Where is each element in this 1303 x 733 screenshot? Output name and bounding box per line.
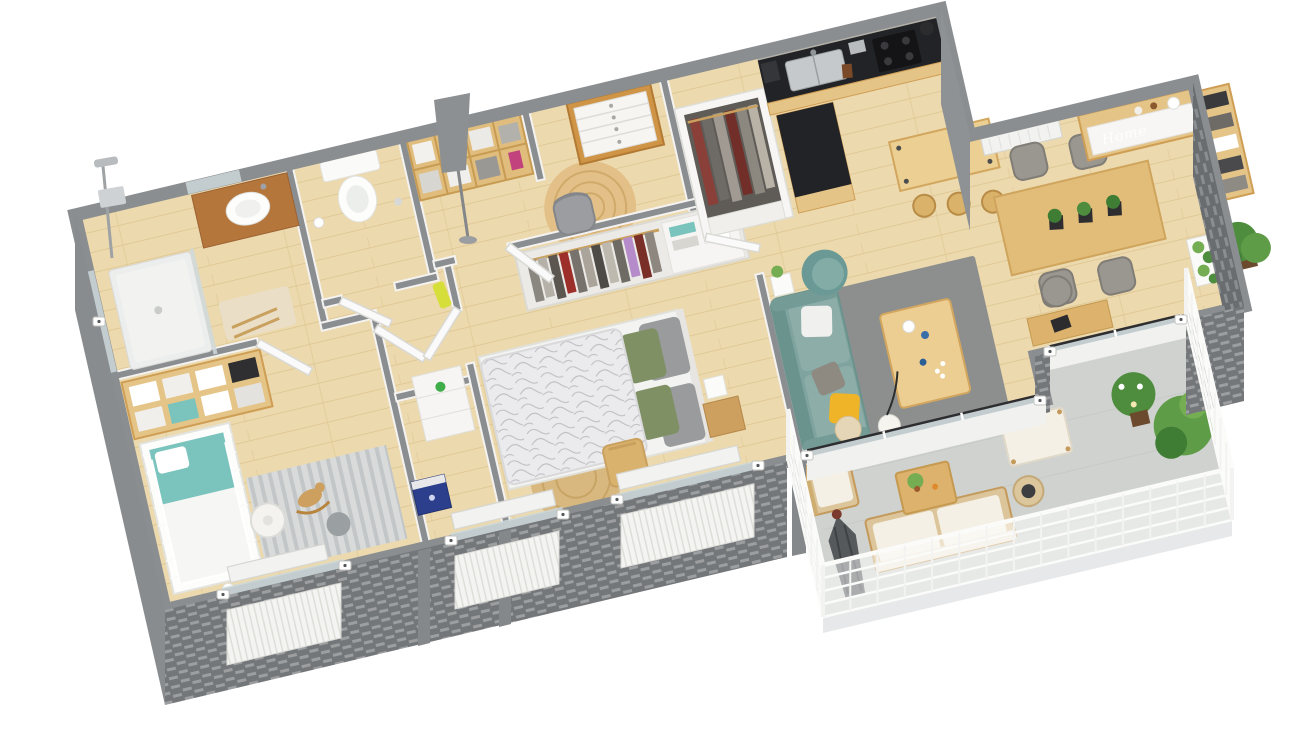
window-tag-icon bbox=[1034, 396, 1046, 405]
floorplan-canvas: Home bbox=[0, 0, 1303, 733]
window-tag-icon bbox=[557, 510, 569, 519]
window-tag-icon bbox=[339, 561, 351, 570]
window-tag-icon bbox=[93, 317, 105, 326]
window-tag-icon bbox=[445, 536, 457, 545]
cube-lamp bbox=[703, 375, 727, 399]
pillow-white bbox=[801, 305, 832, 337]
window-tag-icon bbox=[611, 495, 623, 504]
window-tag-icon bbox=[1044, 347, 1056, 356]
facade-stub-nursery-wall bbox=[418, 548, 430, 646]
lamp-base bbox=[459, 236, 477, 244]
window-tag-icon bbox=[801, 451, 813, 460]
window-tag-icon bbox=[217, 590, 229, 599]
knife-block bbox=[842, 64, 853, 79]
window-tag-icon bbox=[752, 461, 764, 470]
window-tag-icon bbox=[1175, 315, 1187, 324]
floorplan-render: Home bbox=[0, 0, 1303, 733]
toy-box bbox=[411, 474, 452, 515]
